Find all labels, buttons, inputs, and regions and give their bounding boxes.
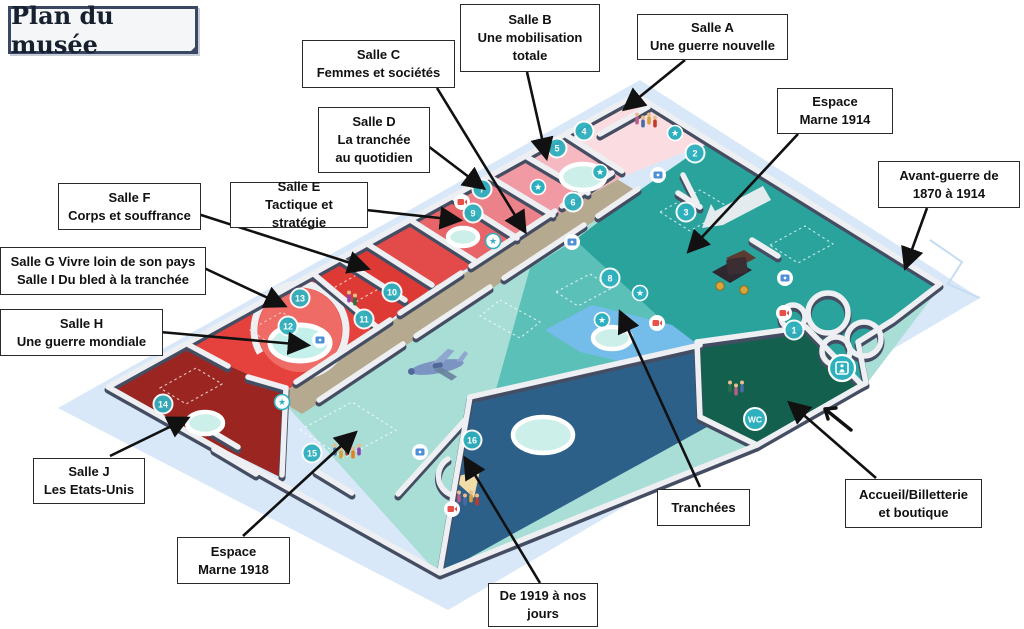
svg-text:★: ★ (671, 128, 679, 138)
page-title-text: Plan du musée (11, 1, 195, 59)
svg-text:★: ★ (596, 167, 604, 177)
svg-text:★: ★ (489, 236, 497, 246)
svg-text:12: 12 (283, 321, 293, 331)
title-fold-corner (188, 44, 198, 54)
entrance-arrow-icon (825, 408, 851, 430)
svg-text:11: 11 (359, 314, 369, 324)
svg-text:13: 13 (295, 293, 305, 303)
svg-text:WC: WC (748, 414, 762, 424)
label-avant-guerre: Avant-guerre de 1870 à 1914 (878, 161, 1020, 208)
svg-text:10: 10 (387, 287, 397, 297)
label-salle-e: Salle E Tactique et stratégie (230, 182, 368, 228)
svg-text:1: 1 (791, 325, 796, 335)
label-salle-a: Salle A Une guerre nouvelle (637, 14, 788, 60)
label-salle-f: Salle F Corps et souffrance (58, 183, 201, 230)
svg-text:★: ★ (598, 315, 606, 325)
label-tranchees: Tranchées (657, 489, 750, 526)
label-salle-g-i: Salle G Vivre loin de son pays Salle I D… (0, 247, 206, 295)
svg-text:6: 6 (570, 197, 575, 207)
page-title: Plan du musée (8, 6, 198, 54)
svg-text:15: 15 (307, 448, 317, 458)
arrow-salle-d (428, 146, 482, 187)
svg-text:14: 14 (158, 399, 168, 409)
svg-text:★: ★ (636, 288, 644, 298)
svg-text:9: 9 (470, 208, 475, 218)
label-salle-c: Salle C Femmes et sociétés (302, 40, 455, 88)
svg-text:3: 3 (683, 207, 688, 217)
label-salle-j: Salle J Les Etats-Unis (33, 458, 145, 504)
svg-text:5: 5 (554, 143, 559, 153)
label-de-1919: De 1919 à nos jours (488, 583, 598, 627)
svg-text:★: ★ (278, 397, 286, 407)
label-marne-1914: Espace Marne 1914 (777, 88, 893, 134)
label-salle-d: Salle D La tranchée au quotidien (318, 107, 430, 173)
label-accueil: Accueil/Billetterie et boutique (845, 479, 982, 528)
arrow-salle-g-i (204, 268, 283, 305)
svg-text:2: 2 (692, 148, 697, 158)
svg-text:4: 4 (581, 126, 586, 136)
svg-text:★: ★ (534, 182, 542, 192)
label-marne-1918: Espace Marne 1918 (177, 537, 290, 584)
svg-text:16: 16 (467, 435, 477, 445)
label-salle-h: Salle H Une guerre mondiale (0, 309, 163, 356)
museum-plan-page: ★★★★★★★WC 12345678910111213141516 Plan d… (0, 0, 1024, 629)
svg-text:8: 8 (607, 273, 612, 283)
label-salle-b: Salle B Une mobilisation totale (460, 4, 600, 72)
